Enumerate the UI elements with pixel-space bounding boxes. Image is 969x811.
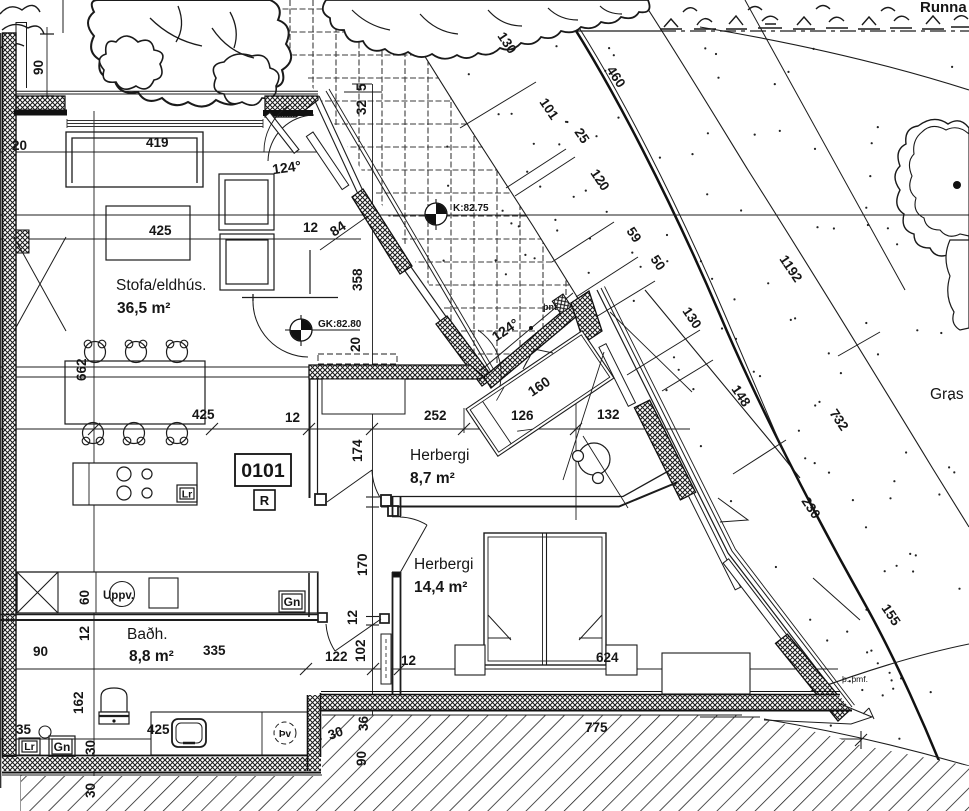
svg-text:8,7 m²: 8,7 m² bbox=[410, 470, 455, 487]
svg-text:þ. þmf.: þ. þmf. bbox=[842, 674, 868, 684]
svg-text:20: 20 bbox=[12, 138, 27, 153]
svg-text:122: 122 bbox=[325, 649, 348, 664]
svg-text:162: 162 bbox=[71, 691, 86, 714]
svg-text:8,8 m²: 8,8 m² bbox=[129, 648, 174, 665]
svg-text:170: 170 bbox=[355, 553, 370, 576]
svg-text:425: 425 bbox=[147, 722, 170, 737]
svg-text:20: 20 bbox=[348, 337, 363, 352]
svg-text:30: 30 bbox=[83, 740, 98, 755]
svg-text:126: 126 bbox=[511, 408, 534, 423]
svg-text:60: 60 bbox=[77, 590, 92, 605]
svg-text:102: 102 bbox=[353, 639, 368, 662]
svg-text:14,4 m²: 14,4 m² bbox=[414, 579, 467, 596]
svg-text:þnt: þnt bbox=[543, 302, 557, 312]
svg-text:90: 90 bbox=[31, 60, 46, 75]
svg-text:Runna: Runna bbox=[920, 0, 967, 16]
svg-text:624: 624 bbox=[596, 650, 619, 665]
svg-text:425: 425 bbox=[149, 223, 172, 238]
svg-text:Herbergi: Herbergi bbox=[414, 556, 473, 573]
svg-text:36,5 m²: 36,5 m² bbox=[117, 300, 170, 317]
svg-text:Lr: Lr bbox=[182, 489, 193, 501]
svg-text:419: 419 bbox=[146, 135, 169, 150]
svg-text:425: 425 bbox=[192, 407, 215, 422]
svg-text:Gn: Gn bbox=[54, 740, 71, 754]
svg-text:335: 335 bbox=[203, 643, 226, 658]
svg-text:Uppv.: Uppv. bbox=[103, 590, 134, 602]
svg-text:0101: 0101 bbox=[241, 460, 285, 482]
svg-text:252: 252 bbox=[424, 408, 447, 423]
svg-text:174: 174 bbox=[350, 439, 365, 462]
svg-text:132: 132 bbox=[597, 407, 620, 422]
svg-text:Þv: Þv bbox=[279, 729, 292, 740]
svg-text:358: 358 bbox=[350, 268, 365, 291]
svg-text:12: 12 bbox=[77, 626, 92, 641]
svg-text:662: 662 bbox=[74, 358, 89, 381]
svg-text:90: 90 bbox=[33, 644, 48, 659]
svg-text:Herbergi: Herbergi bbox=[410, 447, 469, 464]
svg-text:32: 32 bbox=[354, 100, 369, 115]
svg-text:12: 12 bbox=[285, 410, 300, 425]
svg-text:Baðh.: Baðh. bbox=[127, 626, 168, 643]
svg-text:775: 775 bbox=[585, 720, 608, 735]
svg-text:GK:82.80: GK:82.80 bbox=[318, 319, 362, 330]
svg-text:90: 90 bbox=[354, 751, 369, 766]
svg-text:Gn: Gn bbox=[284, 595, 301, 609]
svg-text:30: 30 bbox=[83, 783, 98, 798]
svg-text:12: 12 bbox=[345, 610, 360, 625]
svg-text:R: R bbox=[260, 493, 270, 508]
svg-text:K:82.75: K:82.75 bbox=[453, 203, 489, 214]
svg-text:Lr: Lr bbox=[24, 741, 35, 753]
svg-text:Gras: Gras bbox=[930, 386, 964, 403]
svg-text:36: 36 bbox=[356, 715, 371, 731]
svg-text:35: 35 bbox=[16, 722, 32, 737]
svg-text:Stofa/eldhús.: Stofa/eldhús. bbox=[116, 277, 206, 294]
svg-text:12: 12 bbox=[303, 220, 318, 235]
